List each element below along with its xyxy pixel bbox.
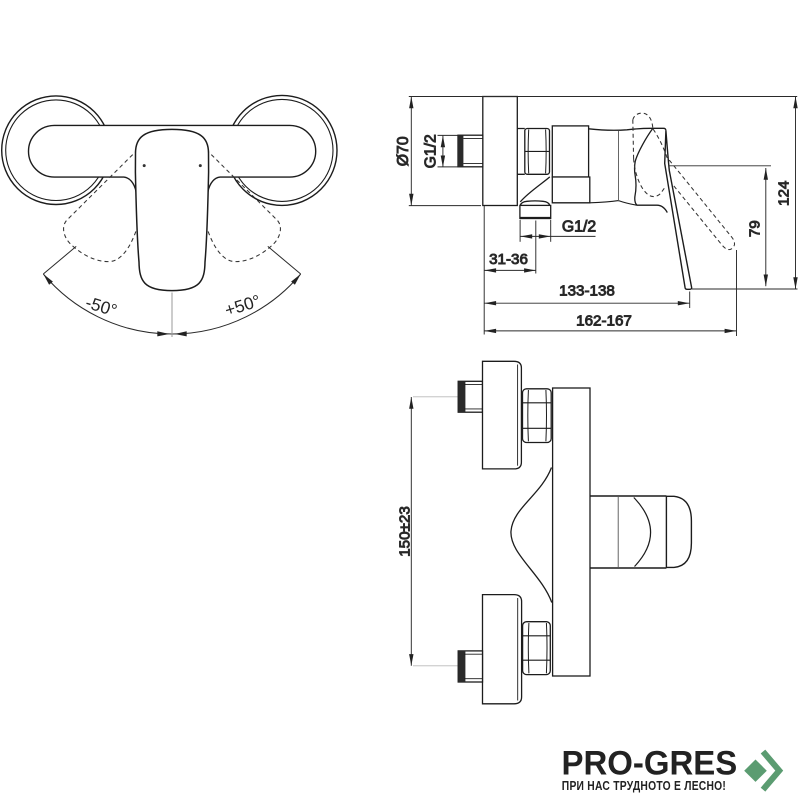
svg-text:Ø70: Ø70 (395, 136, 412, 166)
svg-text:G1/2: G1/2 (422, 134, 439, 168)
svg-text:162-167: 162-167 (576, 312, 632, 329)
svg-text:124: 124 (775, 181, 792, 206)
svg-text:-50°: -50° (83, 292, 119, 320)
svg-text:+50°: +50° (222, 290, 262, 320)
svg-text:PRO-GRES: PRO-GRES (562, 745, 738, 782)
svg-text:150±23: 150±23 (396, 506, 413, 557)
svg-text:ПРИ НАС ТРУДНОТО Е ЛЕСНО!: ПРИ НАС ТРУДНОТО Е ЛЕСНО! (562, 780, 726, 793)
svg-text:79: 79 (746, 220, 763, 237)
svg-text:133-138: 133-138 (559, 282, 615, 299)
svg-text:G1/2: G1/2 (562, 219, 596, 236)
svg-text:31-36: 31-36 (489, 251, 528, 268)
